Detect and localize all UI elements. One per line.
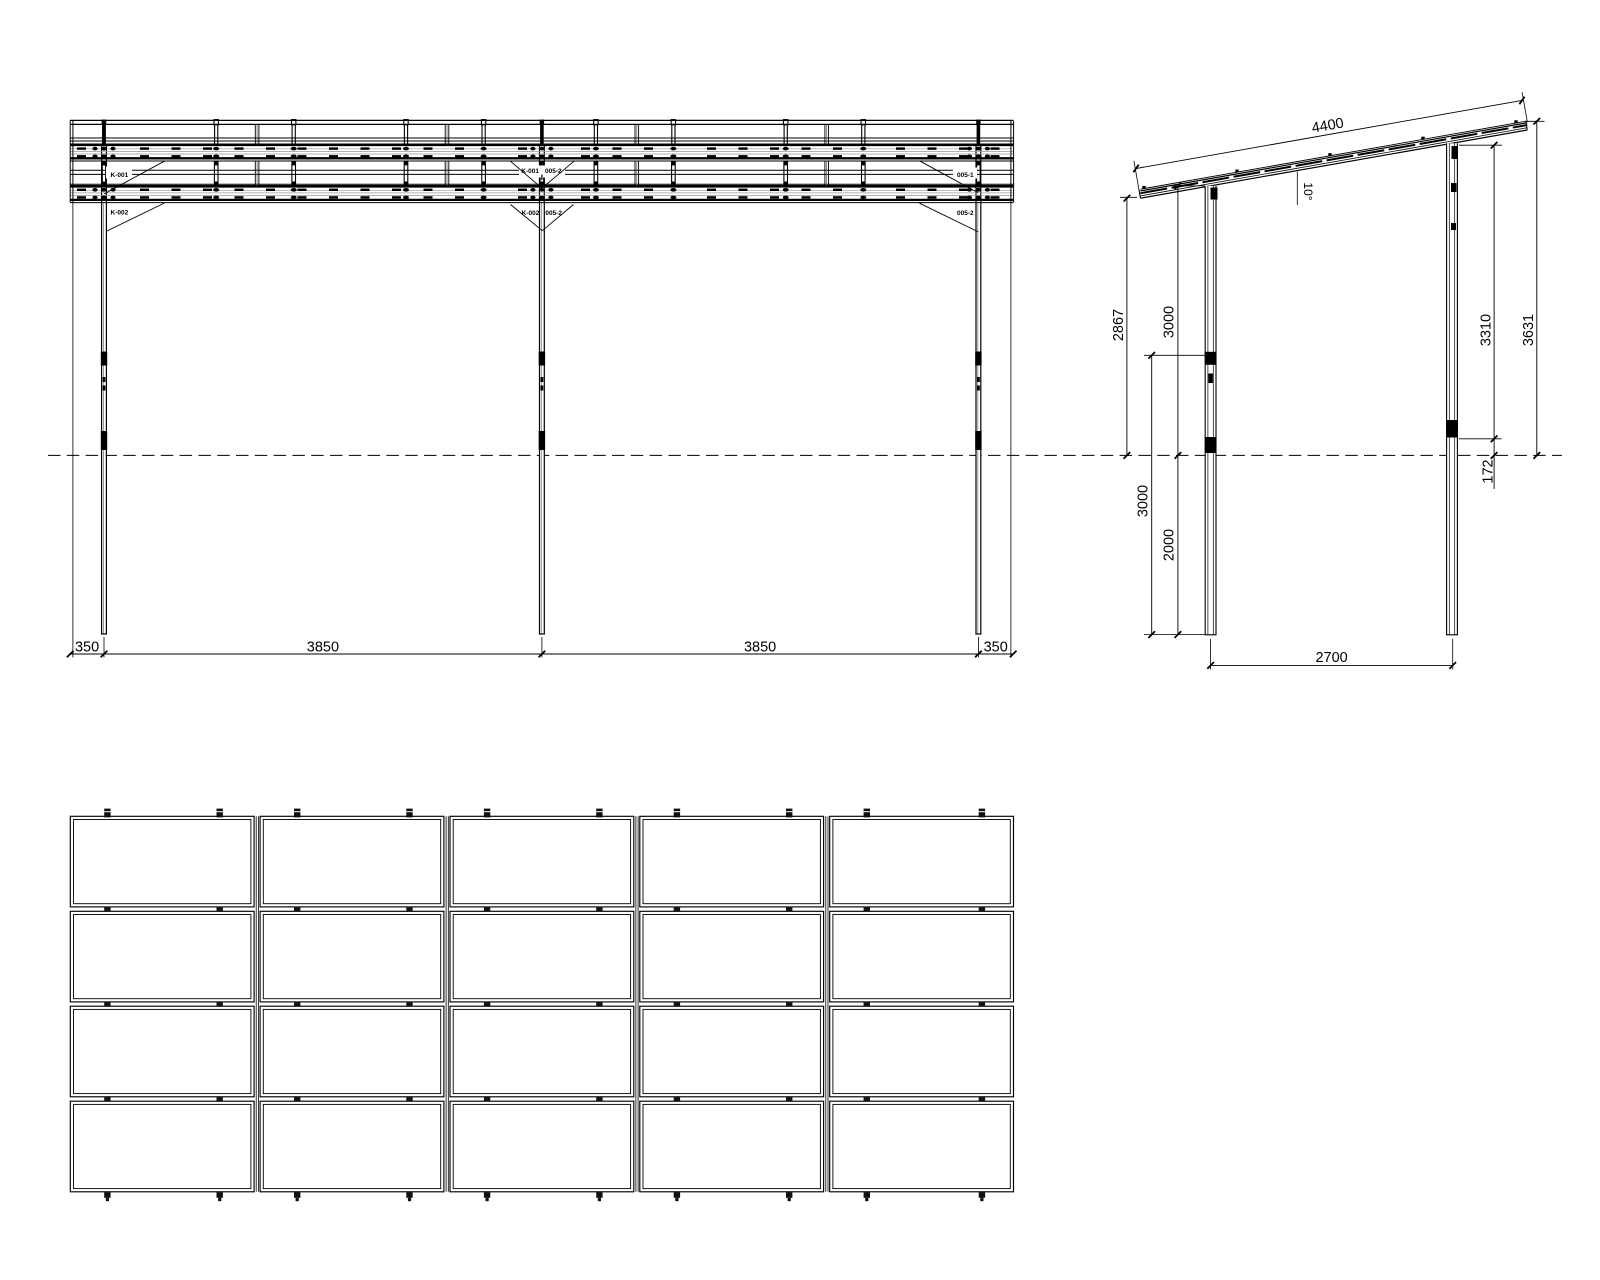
svg-text:2867: 2867 — [1111, 309, 1127, 341]
svg-text:K-001: K-001 — [111, 172, 129, 179]
svg-text:172: 172 — [1480, 459, 1496, 483]
svg-text:005-2: 005-2 — [545, 210, 562, 217]
svg-text:350: 350 — [75, 639, 99, 655]
svg-text:3000: 3000 — [1136, 485, 1152, 517]
svg-text:K-002: K-002 — [111, 210, 129, 217]
svg-text:005-1: 005-1 — [957, 172, 974, 179]
svg-text:3310: 3310 — [1478, 314, 1494, 346]
svg-text:K-001: K-001 — [521, 168, 539, 175]
svg-text:2000: 2000 — [1162, 529, 1178, 561]
svg-text:3000: 3000 — [1162, 306, 1178, 338]
svg-text:005-2: 005-2 — [545, 168, 562, 175]
svg-text:3631: 3631 — [1521, 314, 1537, 346]
svg-text:2700: 2700 — [1315, 650, 1347, 666]
svg-text:3850: 3850 — [307, 639, 339, 655]
svg-text:005-2: 005-2 — [957, 210, 974, 217]
svg-text:350: 350 — [984, 639, 1008, 655]
svg-text:K-002: K-002 — [522, 210, 540, 217]
svg-text:10°: 10° — [1301, 182, 1315, 200]
svg-text:3850: 3850 — [744, 639, 776, 655]
